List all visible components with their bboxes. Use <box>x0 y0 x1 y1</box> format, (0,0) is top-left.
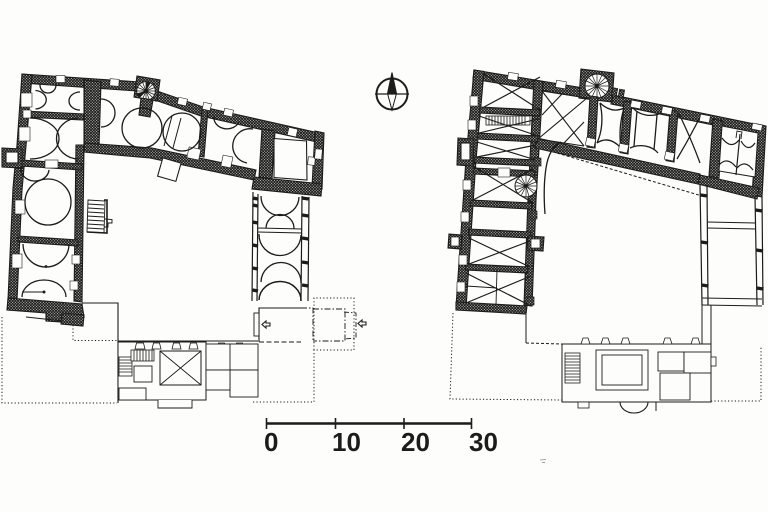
svg-text:30: 30 <box>469 427 498 457</box>
svg-text:20: 20 <box>401 427 430 457</box>
svg-text:10: 10 <box>332 427 361 457</box>
svg-text:0: 0 <box>264 427 278 457</box>
